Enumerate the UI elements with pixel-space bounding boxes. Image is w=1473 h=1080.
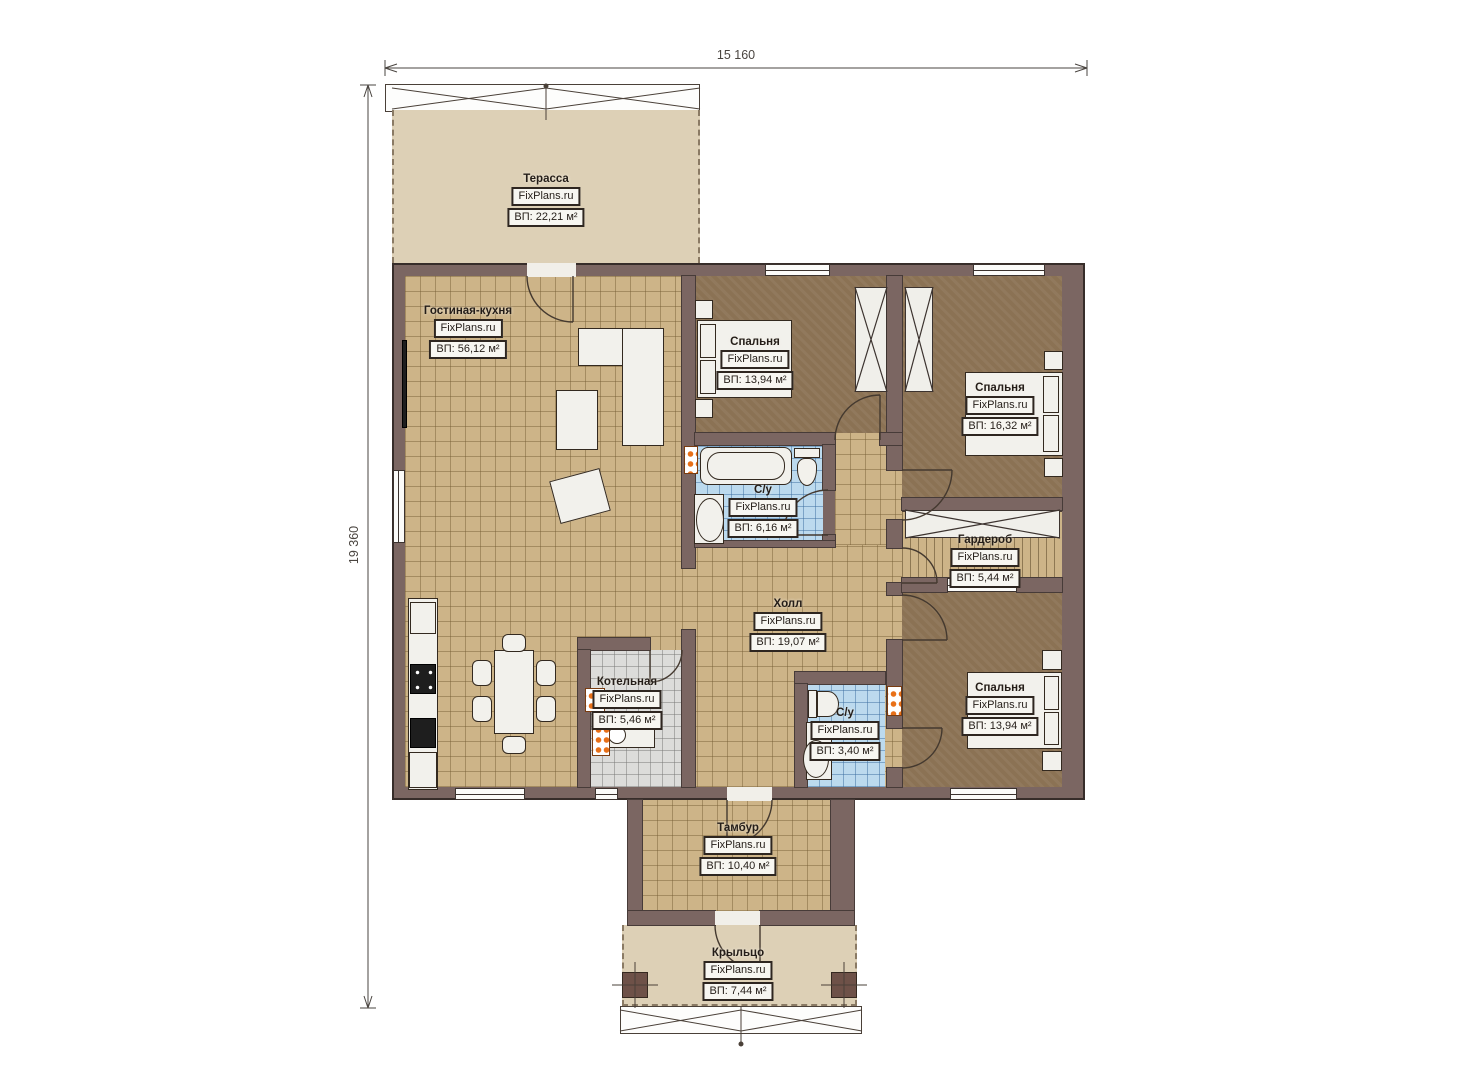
room-name: Спальня bbox=[730, 336, 780, 348]
chair bbox=[502, 736, 526, 754]
area-box: ВП: 22,21 м² bbox=[507, 208, 584, 227]
room-name: Гостиная-кухня bbox=[424, 305, 512, 317]
room-label-bedroom-1: Спальня FixPlans.ru ВП: 13,94 м² bbox=[716, 336, 793, 390]
room-label-wardrobe: Гардероб FixPlans.ru ВП: 5,44 м² bbox=[949, 534, 1020, 588]
wall bbox=[795, 672, 885, 684]
vestibule-wall bbox=[628, 800, 642, 911]
closet bbox=[905, 287, 933, 392]
fridge bbox=[409, 752, 437, 788]
nightstand bbox=[1042, 650, 1062, 670]
window bbox=[393, 470, 405, 543]
brand-box: FixPlans.ru bbox=[728, 498, 797, 517]
dimension-height-label: 19 360 bbox=[347, 526, 361, 564]
brand-box: FixPlans.ru bbox=[433, 319, 502, 338]
area-box: ВП: 19,07 м² bbox=[749, 633, 826, 652]
window bbox=[765, 264, 830, 276]
wall bbox=[1017, 578, 1062, 592]
wall bbox=[695, 433, 835, 445]
pillow bbox=[700, 360, 716, 394]
room-label-hall: Холл FixPlans.ru ВП: 19,07 м² bbox=[749, 598, 826, 652]
pillow bbox=[700, 324, 716, 358]
radiator bbox=[684, 446, 698, 474]
stove bbox=[410, 664, 436, 694]
dimension-width-label: 15 160 bbox=[717, 48, 755, 62]
room-name: Котельная bbox=[597, 676, 657, 688]
room-label-bathroom-2: С/у FixPlans.ru ВП: 3,40 м² bbox=[809, 707, 880, 761]
area-box: ВП: 10,40 м² bbox=[699, 857, 776, 876]
porch-post bbox=[831, 972, 857, 998]
radiator bbox=[887, 686, 902, 716]
brand-box: FixPlans.ru bbox=[720, 350, 789, 369]
nightstand bbox=[1044, 351, 1063, 370]
sink bbox=[696, 498, 724, 542]
terrace-roof bbox=[385, 84, 700, 112]
room-name: С/у bbox=[754, 484, 772, 496]
room-name: Тамбур bbox=[717, 822, 759, 834]
area-box: ВП: 3,40 м² bbox=[809, 742, 880, 761]
window bbox=[595, 788, 618, 800]
kitchen-cabinet bbox=[410, 602, 436, 634]
dining-table bbox=[494, 650, 534, 734]
wall bbox=[887, 583, 902, 595]
wall bbox=[902, 578, 947, 592]
vestibule-door-opening bbox=[727, 787, 772, 801]
toilet-tank bbox=[794, 448, 820, 458]
wall bbox=[578, 650, 590, 787]
wall bbox=[887, 768, 902, 787]
area-box: ВП: 5,46 м² bbox=[591, 711, 662, 730]
floor-plan: 15 160 19 360 bbox=[0, 0, 1473, 1080]
vestibule-wall bbox=[760, 911, 854, 925]
room-name: Спальня bbox=[975, 682, 1025, 694]
room-label-vestibule: Тамбур FixPlans.ru ВП: 10,40 м² bbox=[699, 822, 776, 876]
nightstand bbox=[1044, 458, 1063, 477]
pillow bbox=[1043, 415, 1059, 452]
porch-roof bbox=[620, 1006, 862, 1034]
brand-box: FixPlans.ru bbox=[592, 690, 661, 709]
chair bbox=[502, 634, 526, 652]
terrace-door-opening bbox=[527, 263, 576, 277]
area-box: ВП: 5,44 м² bbox=[949, 569, 1020, 588]
kitchen-sink bbox=[410, 718, 436, 748]
room-name: Холл bbox=[774, 598, 803, 610]
room-label-bedroom-3: Спальня FixPlans.ru ВП: 13,94 м² bbox=[961, 682, 1038, 736]
wall bbox=[880, 433, 902, 445]
chair bbox=[536, 660, 556, 686]
area-box: ВП: 7,44 м² bbox=[702, 982, 773, 1001]
chair bbox=[536, 696, 556, 722]
wall bbox=[823, 445, 835, 490]
nightstand bbox=[1042, 751, 1062, 771]
vestibule-wall bbox=[831, 800, 854, 911]
area-box: ВП: 13,94 м² bbox=[961, 717, 1038, 736]
chair bbox=[472, 660, 492, 686]
area-box: ВП: 56,12 м² bbox=[429, 340, 506, 359]
pillow bbox=[1044, 676, 1059, 710]
brand-box: FixPlans.ru bbox=[965, 696, 1034, 715]
room-label-porch: Крыльцо FixPlans.ru ВП: 7,44 м² bbox=[702, 947, 773, 1001]
sofa bbox=[622, 328, 664, 446]
pillow bbox=[1044, 712, 1059, 745]
brand-box: FixPlans.ru bbox=[703, 836, 772, 855]
brand-box: FixPlans.ru bbox=[810, 721, 879, 740]
room-label-terrace: Терасса FixPlans.ru ВП: 22,21 м² bbox=[507, 173, 584, 227]
brand-box: FixPlans.ru bbox=[965, 396, 1034, 415]
area-box: ВП: 16,32 м² bbox=[961, 417, 1038, 436]
tv bbox=[402, 340, 407, 428]
brand-box: FixPlans.ru bbox=[950, 548, 1019, 567]
vestibule-wall bbox=[628, 911, 715, 925]
coffee-table bbox=[556, 390, 598, 450]
pillow bbox=[1043, 376, 1059, 413]
area-box: ВП: 13,94 м² bbox=[716, 371, 793, 390]
wall bbox=[682, 630, 695, 787]
nightstand bbox=[695, 300, 713, 319]
chair bbox=[472, 696, 492, 722]
porch-door-opening bbox=[715, 911, 760, 925]
window bbox=[455, 788, 525, 800]
window bbox=[973, 264, 1045, 276]
room-label-bathroom-1: С/у FixPlans.ru ВП: 6,16 м² bbox=[727, 484, 798, 538]
porch-post bbox=[622, 972, 648, 998]
room-label-boiler-room: Котельная FixPlans.ru ВП: 5,46 м² bbox=[591, 676, 662, 730]
wall bbox=[887, 520, 902, 548]
window bbox=[950, 788, 1017, 800]
area-box: ВП: 6,16 м² bbox=[727, 519, 798, 538]
nightstand bbox=[695, 399, 713, 418]
wall bbox=[902, 498, 1062, 510]
room-name: Терасса bbox=[523, 173, 569, 185]
brand-box: FixPlans.ru bbox=[753, 612, 822, 631]
brand-box: FixPlans.ru bbox=[511, 187, 580, 206]
room-name: Гардероб bbox=[958, 534, 1012, 546]
bathtub-inner bbox=[707, 452, 785, 480]
wall bbox=[578, 638, 650, 650]
room-name: Крыльцо bbox=[712, 947, 764, 959]
room-name: Спальня bbox=[975, 382, 1025, 394]
brand-box: FixPlans.ru bbox=[703, 961, 772, 980]
room-label-bedroom-2: Спальня FixPlans.ru ВП: 16,32 м² bbox=[961, 382, 1038, 436]
closet bbox=[855, 287, 887, 392]
room-label-living-kitchen: Гостиная-кухня FixPlans.ru ВП: 56,12 м² bbox=[424, 305, 512, 359]
room-name: С/у bbox=[836, 707, 854, 719]
